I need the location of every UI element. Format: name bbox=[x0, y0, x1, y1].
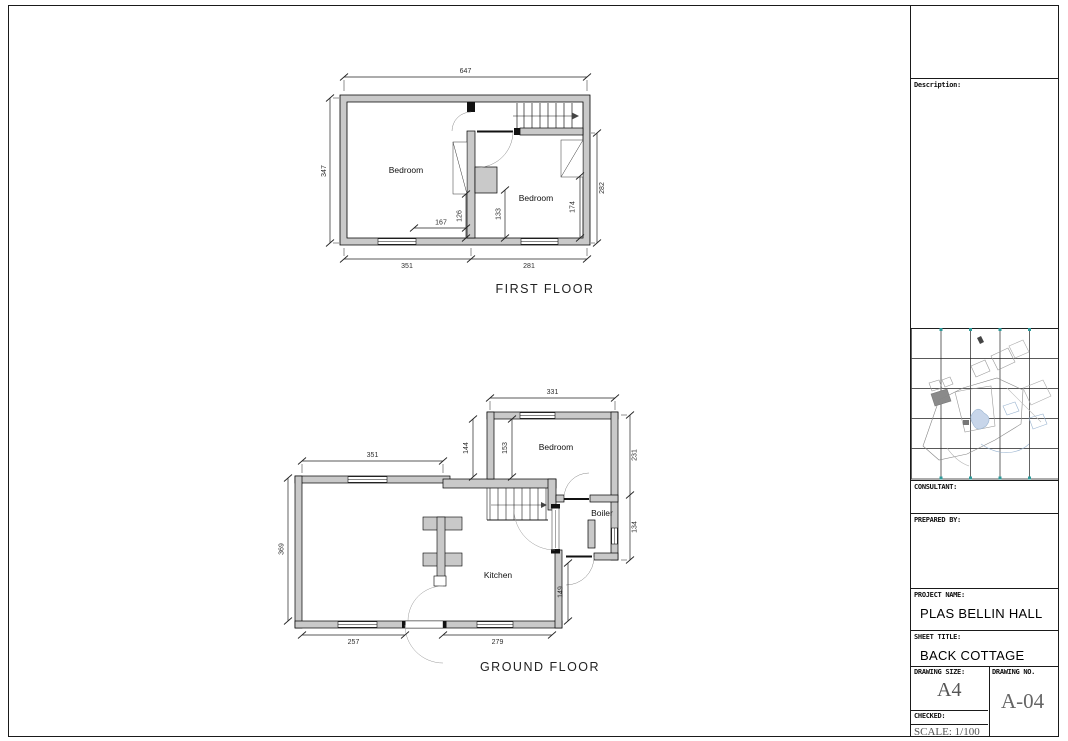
drawing-no-label: DRAWING NO. bbox=[992, 668, 1035, 676]
dim-label: 282 bbox=[599, 182, 606, 194]
divider bbox=[911, 78, 1059, 79]
site-plan-grid bbox=[912, 329, 1059, 480]
room-label-boiler: Boiler bbox=[591, 508, 613, 518]
dim-label: 231 bbox=[632, 449, 639, 461]
dim-label: 149 bbox=[558, 586, 565, 598]
ground-floor-plan: 331 351 369 144 153 231 134 149 257 279 … bbox=[279, 389, 639, 674]
divider bbox=[911, 710, 988, 711]
ground-floor-stairs bbox=[487, 488, 548, 520]
first-floor-plan: 647 347 282 351 281 167 126 133 174 Bedr… bbox=[321, 68, 606, 296]
divider bbox=[911, 666, 1059, 667]
dim-label: 167 bbox=[435, 220, 447, 227]
site-plan-buildings bbox=[923, 336, 1051, 466]
drawing-size: A4 bbox=[937, 679, 961, 702]
divider bbox=[911, 513, 1059, 514]
dim-label: 153 bbox=[502, 442, 509, 454]
room-label-bedroom-left: Bedroom bbox=[389, 165, 424, 175]
divider bbox=[911, 630, 1059, 631]
dim-label: 133 bbox=[496, 208, 503, 220]
dim-label: 331 bbox=[547, 389, 559, 396]
door-arc bbox=[452, 112, 471, 131]
dim-label: 351 bbox=[367, 452, 379, 459]
chimney bbox=[475, 167, 497, 193]
wardrobe-right bbox=[561, 140, 583, 177]
dim-label: 281 bbox=[523, 263, 535, 270]
sheet-title-label: SHEET TITLE: bbox=[914, 633, 961, 641]
floor-plan-drawing: 647 347 282 351 281 167 126 133 174 Bedr… bbox=[0, 0, 910, 741]
dim-label: 347 bbox=[321, 165, 328, 177]
door-jamb bbox=[514, 128, 520, 135]
ground-floor-windows bbox=[338, 413, 617, 628]
door-arc bbox=[408, 586, 443, 621]
door-arc bbox=[564, 473, 589, 498]
project-name: PLAS BELLIN HALL bbox=[920, 606, 1043, 621]
dim-label: 144 bbox=[463, 442, 470, 454]
scale-text: SCALE: 1/100 bbox=[914, 726, 980, 738]
sheet-title: BACK COTTAGE bbox=[920, 648, 1024, 663]
dim-label: 257 bbox=[348, 639, 360, 646]
title-block: Description: bbox=[910, 5, 1059, 737]
room-label-bedroom-right: Bedroom bbox=[519, 193, 554, 203]
prepared-by-label: PREPARED BY: bbox=[914, 516, 961, 524]
dividing-wall bbox=[467, 131, 475, 238]
first-floor-title: FIRST FLOOR bbox=[496, 282, 595, 296]
dim-label: 369 bbox=[279, 543, 286, 555]
project-name-label: PROJECT NAME: bbox=[914, 591, 965, 599]
wall-stub bbox=[467, 102, 475, 112]
room-label-bedroom: Bedroom bbox=[539, 442, 574, 452]
dim-label: 647 bbox=[460, 68, 472, 75]
wardrobe-left bbox=[453, 142, 467, 194]
dim-label: 351 bbox=[401, 263, 413, 270]
drawing-no: A-04 bbox=[1001, 689, 1044, 714]
dim-label: 134 bbox=[632, 521, 639, 533]
dim-label: 174 bbox=[570, 201, 577, 213]
divider bbox=[911, 588, 1059, 589]
description-label: Description: bbox=[914, 81, 961, 89]
room-label-kitchen: Kitchen bbox=[484, 570, 513, 580]
site-location-plan bbox=[911, 328, 1059, 480]
first-floor-stairs bbox=[513, 103, 579, 128]
divider bbox=[989, 666, 990, 736]
divider bbox=[911, 724, 988, 725]
ground-floor-title: GROUND FLOOR bbox=[480, 660, 600, 674]
ground-floor-chimney bbox=[423, 517, 462, 586]
ground-floor-dimensions bbox=[284, 395, 634, 639]
dim-label: 279 bbox=[492, 639, 504, 646]
exterior-door bbox=[402, 621, 447, 663]
checked-label: CHECKED: bbox=[914, 712, 945, 720]
consultant-label: CONSULTANT: bbox=[914, 483, 957, 491]
dim-label: 126 bbox=[457, 210, 464, 222]
drawing-size-label: DRAWING SIZE: bbox=[914, 668, 965, 676]
landing-wall bbox=[520, 128, 583, 135]
divider bbox=[911, 480, 1059, 481]
door-arc bbox=[477, 132, 513, 168]
kitchen-side-door bbox=[514, 504, 560, 554]
